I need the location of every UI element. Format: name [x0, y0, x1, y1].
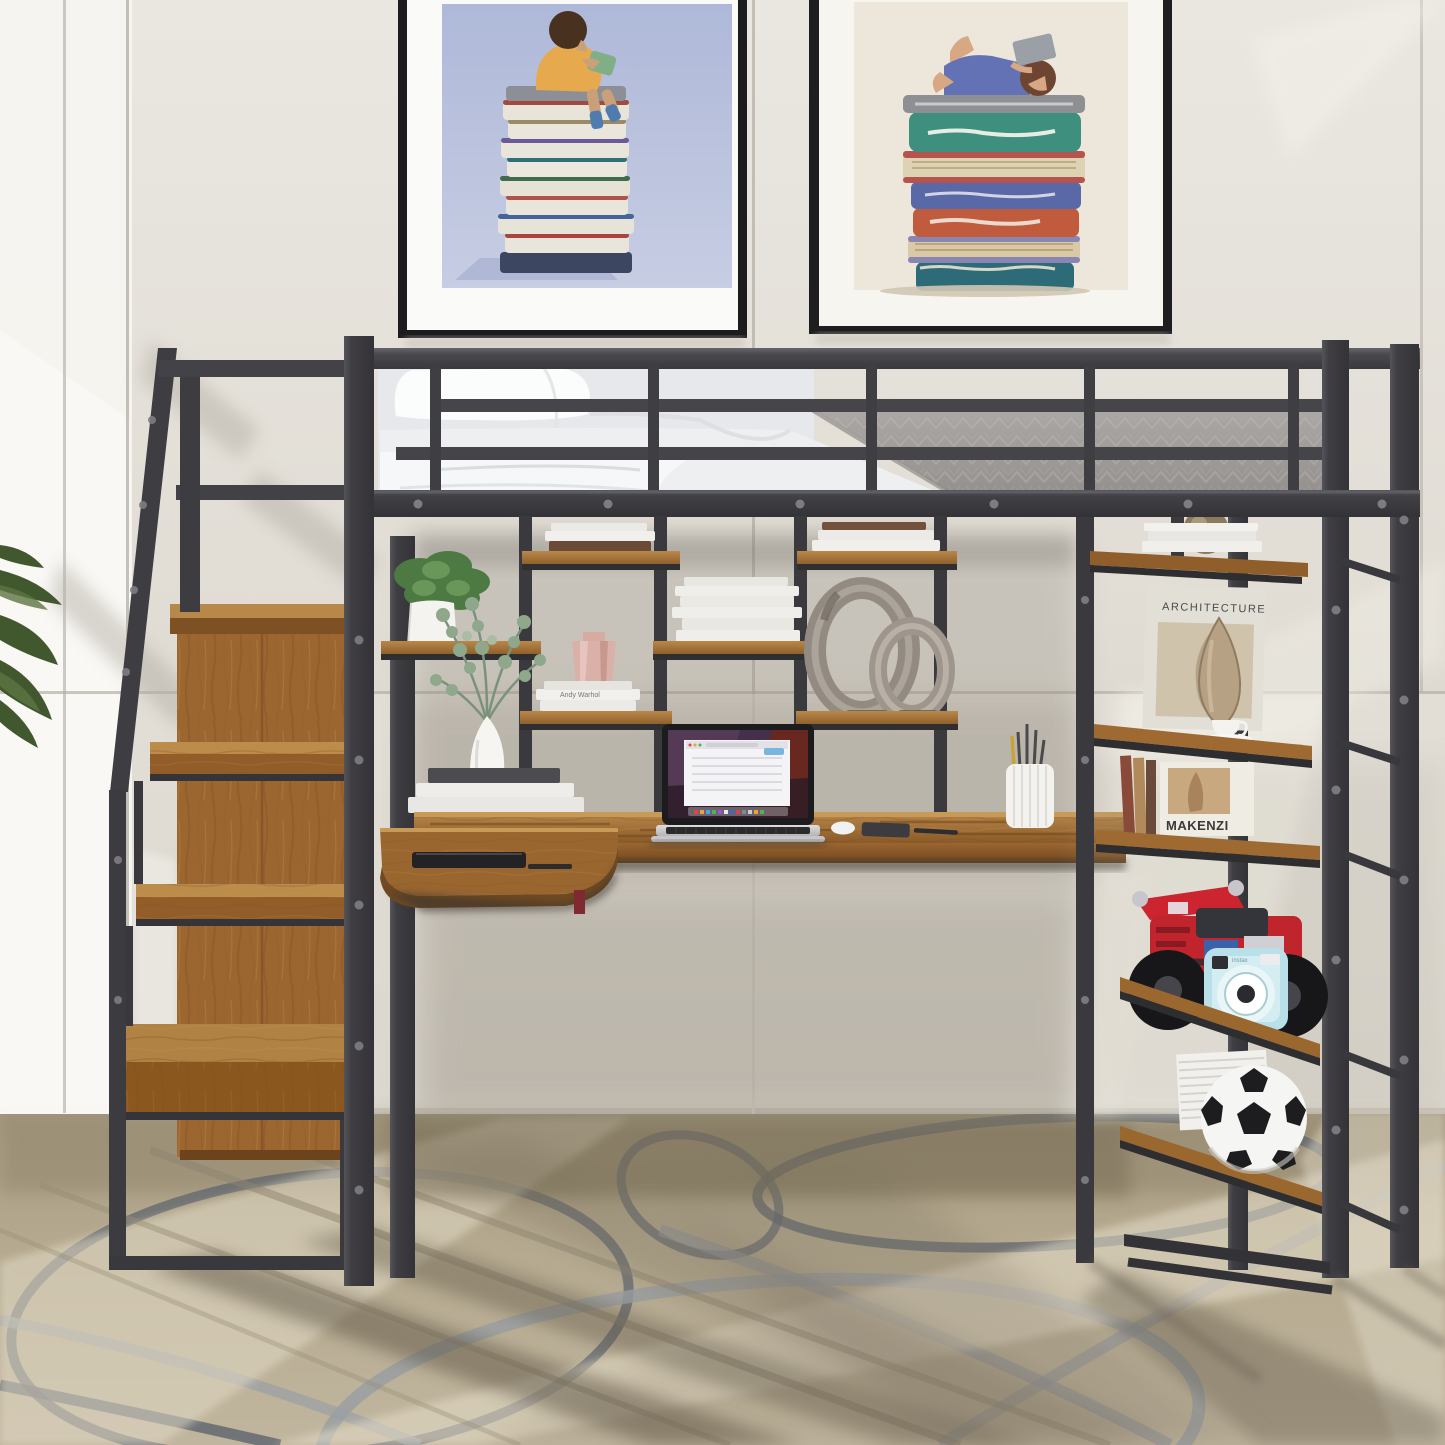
svg-text:MAKENZI: MAKENZI: [1166, 818, 1229, 833]
svg-text:Andy Warhol: Andy Warhol: [560, 692, 600, 699]
svg-text:instax: instax: [1232, 958, 1248, 964]
